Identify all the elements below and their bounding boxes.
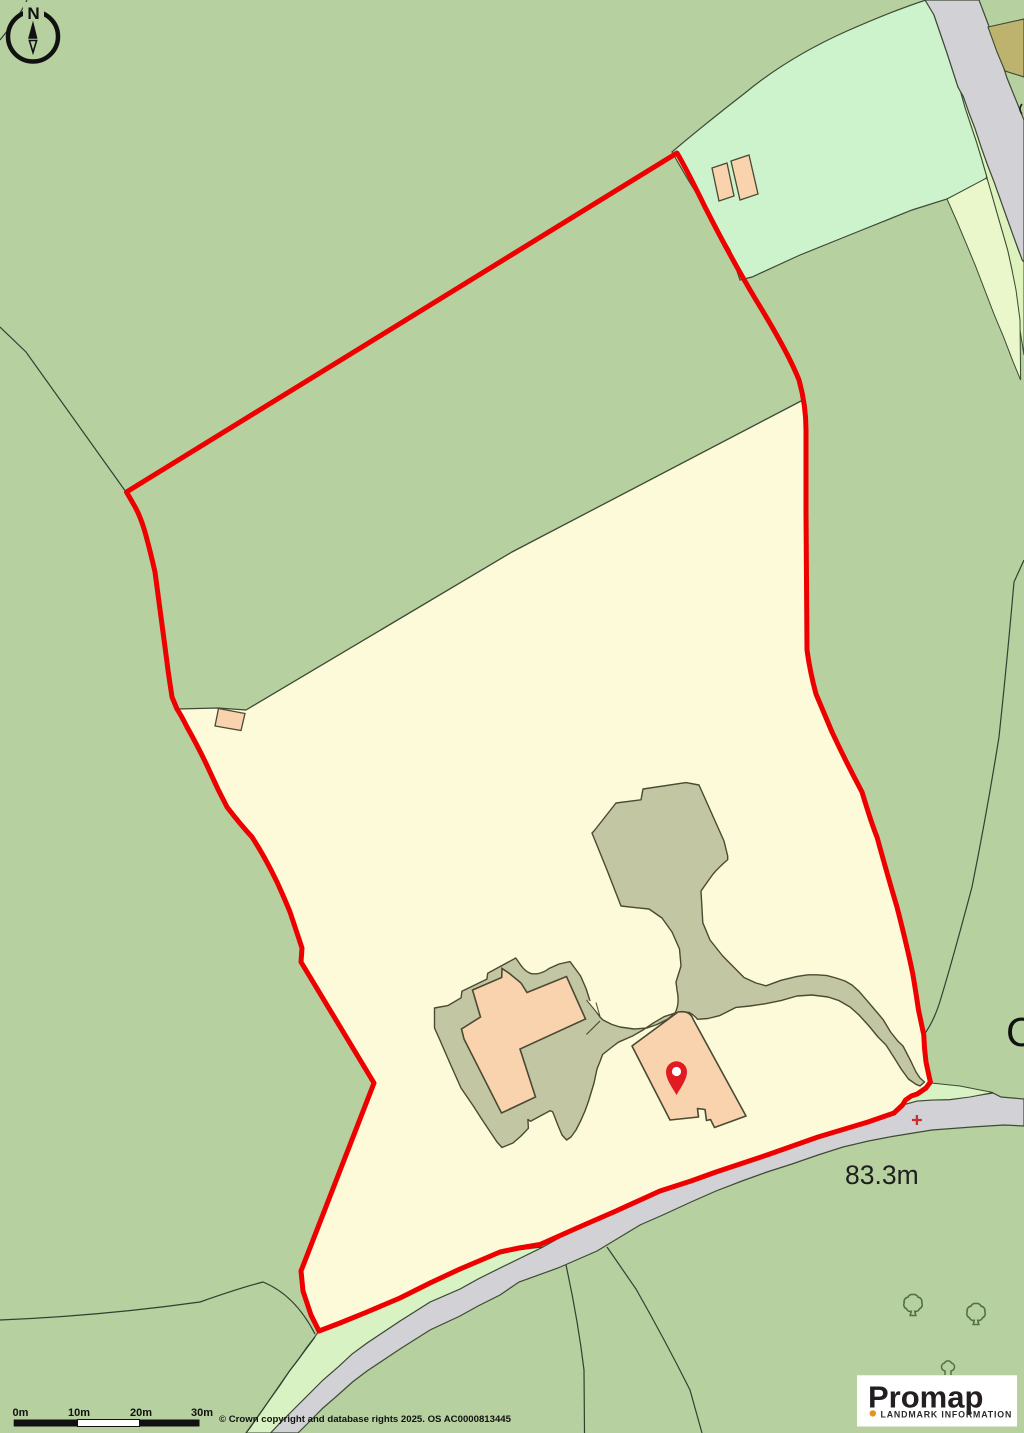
svg-text:83.3m: 83.3m — [845, 1160, 919, 1190]
svg-text:LANDMARK INFORMATION: LANDMARK INFORMATION — [881, 1410, 1013, 1420]
svg-text:0m: 0m — [13, 1407, 29, 1419]
svg-text:20m: 20m — [130, 1407, 152, 1419]
svg-text:10m: 10m — [68, 1407, 90, 1419]
svg-text:C: C — [1006, 1009, 1024, 1055]
svg-text:30m: 30m — [191, 1407, 213, 1419]
svg-text:N: N — [27, 4, 39, 23]
svg-text:© Crown copyright and database: © Crown copyright and database rights 20… — [219, 1414, 512, 1425]
